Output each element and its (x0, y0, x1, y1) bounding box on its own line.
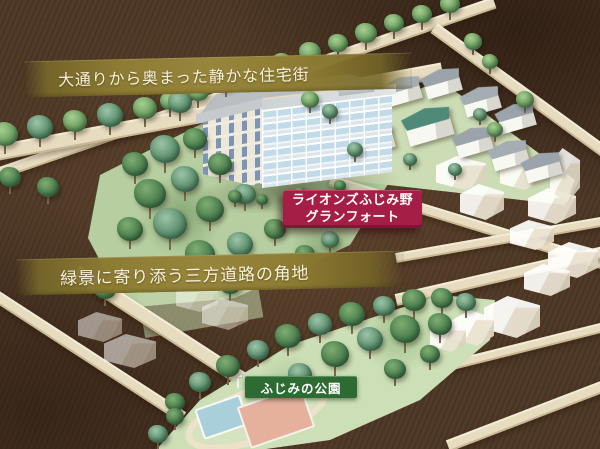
tree-canopy (117, 217, 143, 241)
tree-canopy (308, 313, 332, 335)
tree (464, 33, 482, 57)
tree (196, 196, 224, 234)
tree (97, 103, 123, 138)
tree-canopy (384, 14, 404, 32)
planned-building-box (78, 312, 122, 342)
tree (516, 91, 534, 115)
tree (275, 324, 301, 359)
park-name-badge: ふじみの公園 (245, 376, 357, 398)
tree (27, 115, 53, 150)
tree (384, 14, 404, 41)
tree-canopy (301, 91, 319, 108)
tree-canopy (256, 194, 268, 205)
tree-canopy (0, 167, 21, 187)
caption-band-middle-text: 緑景に寄り添う三方道路の角地 (16, 258, 310, 290)
tree (321, 341, 349, 379)
tree (448, 163, 462, 182)
tree (0, 122, 18, 157)
tree (189, 372, 211, 402)
tree-canopy (171, 166, 199, 192)
tree-canopy (208, 153, 232, 175)
tree-canopy (275, 324, 301, 348)
tree-canopy (473, 108, 487, 121)
tree (355, 23, 377, 53)
tree (216, 355, 240, 387)
tree-canopy (228, 190, 242, 203)
tree (456, 293, 476, 320)
tree (412, 5, 432, 32)
property-name-badge: ライオンズふじみ野 グランフォート (283, 190, 422, 228)
tree-canopy (321, 341, 349, 367)
tree-canopy (482, 54, 498, 69)
caption-band-middle: 緑景に寄り添う三方道路の角地 (16, 251, 405, 296)
tree (247, 340, 269, 370)
tree (473, 108, 487, 127)
tree (390, 315, 420, 356)
road (446, 374, 600, 449)
tree (322, 104, 338, 126)
tree (148, 425, 168, 449)
tree-canopy (134, 179, 166, 208)
tree-canopy (464, 33, 482, 50)
tree-canopy (150, 135, 180, 163)
tree-canopy (37, 177, 59, 197)
tree-canopy (487, 122, 503, 137)
tree (171, 166, 199, 204)
tree (384, 359, 406, 389)
property-name-line2: グランフォート (283, 209, 422, 226)
tree-canopy (189, 372, 211, 392)
tree (347, 142, 363, 164)
tree (440, 0, 460, 22)
tree (63, 110, 87, 142)
tree-canopy (347, 142, 363, 157)
tree-canopy (355, 23, 377, 43)
tree-canopy (420, 345, 440, 363)
tree (168, 91, 192, 123)
tree-canopy (322, 104, 338, 119)
tree (420, 345, 440, 372)
tree-canopy (339, 302, 365, 326)
tree (153, 208, 187, 254)
tree (166, 408, 184, 432)
tree-canopy (384, 359, 406, 379)
tree-canopy (27, 115, 53, 139)
tree-canopy (247, 340, 269, 360)
tree-canopy (166, 408, 184, 425)
site-area-illustration: 大通りから奥まった静かな住宅街 緑景に寄り添う三方道路の角地 ライオンズふじみ野… (0, 0, 600, 449)
tree (487, 122, 503, 144)
tree (403, 153, 417, 172)
tree (183, 128, 207, 160)
park-name-text: ふじみの公園 (260, 378, 341, 397)
tree (428, 313, 452, 345)
property-name-line1: ライオンズふじみ野 (283, 192, 422, 209)
tree-canopy (183, 128, 207, 150)
tree-canopy (97, 103, 123, 127)
tree-canopy (0, 122, 18, 146)
tree-canopy (373, 296, 395, 316)
caption-band-top-text: 大通りから奥まった静かな住宅街 (24, 61, 310, 91)
tree (357, 327, 383, 362)
tree-canopy (328, 34, 348, 52)
tree-canopy (440, 0, 460, 13)
tree-canopy (390, 315, 420, 343)
tree-canopy (133, 97, 157, 119)
tree (133, 97, 157, 129)
tree-canopy (216, 355, 240, 377)
tree-canopy (63, 110, 87, 132)
tree (0, 167, 21, 197)
tree (37, 177, 59, 207)
tree-canopy (122, 152, 148, 176)
tree (208, 153, 232, 185)
tree-canopy (196, 196, 224, 222)
tree (256, 194, 268, 210)
tree-canopy (412, 5, 432, 23)
tree-canopy (153, 208, 187, 239)
tree (117, 217, 143, 252)
tree-canopy (516, 91, 534, 108)
tree-canopy (357, 327, 383, 351)
tree (301, 91, 319, 115)
planned-building-box (104, 334, 156, 368)
tree-canopy (321, 231, 339, 248)
tree-canopy (168, 91, 192, 113)
tree-canopy (448, 163, 462, 176)
tree-canopy (148, 425, 168, 443)
tree-canopy (456, 293, 476, 311)
tree-canopy (227, 232, 253, 256)
tree-canopy (428, 313, 452, 335)
tree-canopy (402, 289, 426, 311)
tree (482, 54, 498, 76)
tree (228, 190, 242, 209)
tree-canopy (431, 288, 453, 308)
tree-canopy (403, 153, 417, 166)
